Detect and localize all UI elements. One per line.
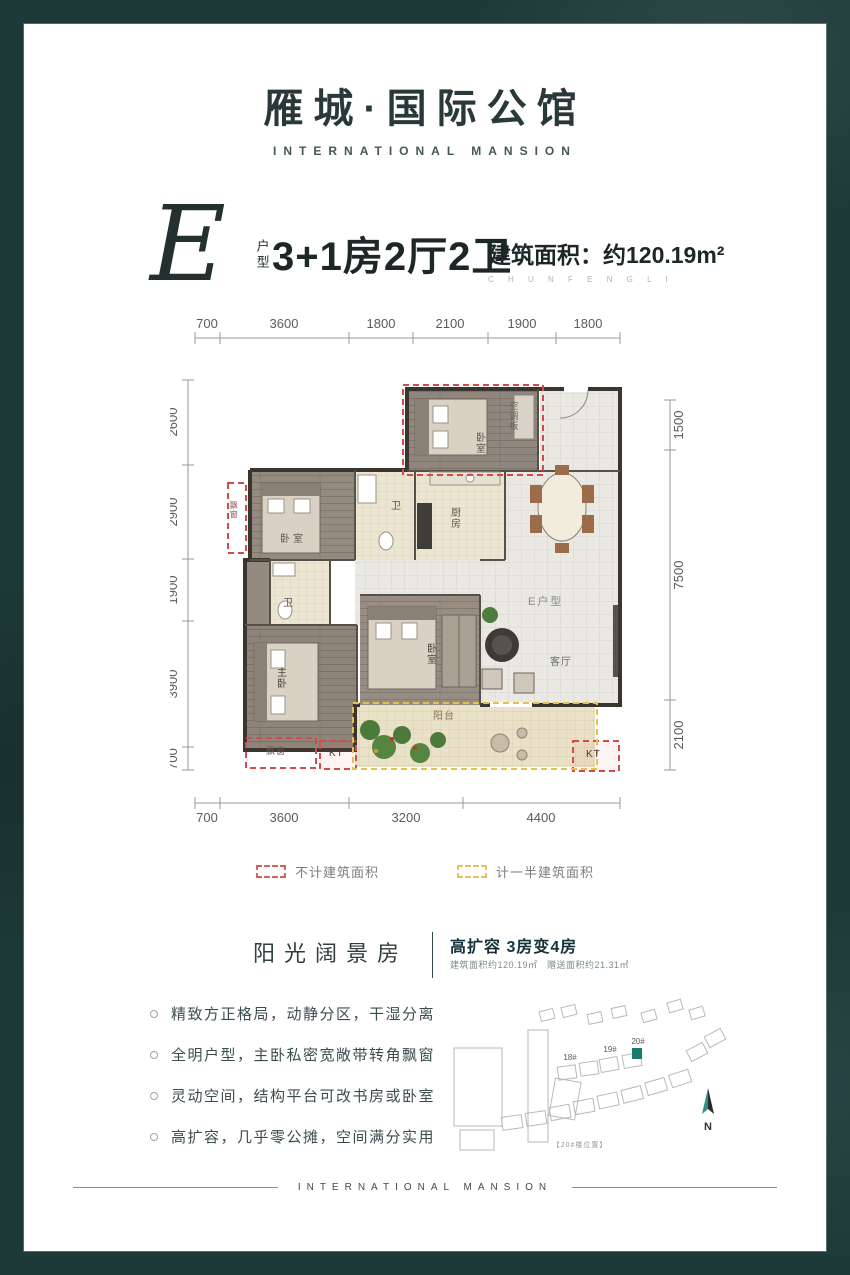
- highlighted-building-20: [632, 1048, 642, 1059]
- site-buildings: [454, 999, 726, 1150]
- label-building-20: 20#: [631, 1037, 645, 1046]
- bullet-3-text: 灵动空间，结构平台可改书房或卧室: [171, 1087, 435, 1107]
- feature-divider: [432, 932, 433, 978]
- dim-left-700: 700: [170, 748, 180, 770]
- label-unit-tag: E户型: [528, 596, 563, 609]
- label-master-bedroom: 主卧: [274, 667, 286, 689]
- feature-headline: 高扩容 3房变4房: [450, 933, 577, 957]
- dim-bot-4400: 4400: [527, 810, 556, 825]
- floor-plan: 700 3600 1800 2100 1900 1800 700 3600 32…: [170, 315, 690, 835]
- north-arrow-teal: [702, 1088, 708, 1114]
- north-arrow-dark: [708, 1088, 714, 1114]
- red-dashed-swatch: [256, 865, 286, 878]
- band-line-right: [572, 1187, 777, 1188]
- bullet-4: 高扩容，几乎零公摊，空间满分实用: [150, 1128, 435, 1148]
- dim-top-1800b: 1800: [574, 316, 603, 331]
- bullet-marker: [150, 1051, 158, 1059]
- bullet-2-text: 全明户型，主卧私密宽敞带转角飘窗: [171, 1046, 435, 1066]
- bullet-4-text: 高扩容，几乎零公摊，空间满分实用: [171, 1128, 435, 1148]
- label-bath-1: 卫: [391, 501, 402, 513]
- band-line-left: [73, 1187, 278, 1188]
- floor-plan-drawing: 700 3600 1800 2100 1900 1800 700 3600 32…: [170, 315, 690, 835]
- label-bath-2: 卫: [283, 598, 294, 610]
- dim-top-700: 700: [196, 316, 218, 331]
- unit-area-text: 建筑面积：约120.19m²: [488, 236, 724, 270]
- label-building-18: 18#: [563, 1053, 577, 1062]
- page-subtitle: INTERNATIONAL MANSION: [24, 144, 826, 158]
- label-bay-window-bottom: 飘窗: [266, 746, 286, 756]
- label-bedroom-left: 卧室: [280, 534, 306, 546]
- unit-rooms-title: 3+1房2厅2卫: [272, 224, 512, 282]
- dim-right-1500: 1500: [671, 411, 686, 440]
- page-title: 雁城·国际公馆: [24, 76, 826, 134]
- entry-door-gap: [564, 387, 588, 392]
- dim-top-1800: 1800: [367, 316, 396, 331]
- label-bedroom-top: 卧室: [473, 432, 485, 454]
- dim-bot-3200: 3200: [392, 810, 421, 825]
- page-background: 雁城·国际公馆 INTERNATIONAL MANSION E 户型 3+1房2…: [0, 0, 850, 1275]
- flyer-card: 雁城·国际公馆 INTERNATIONAL MANSION E 户型 3+1房2…: [24, 24, 826, 1251]
- dim-right-2100: 2100: [671, 721, 686, 750]
- unit-letter: E: [150, 192, 226, 296]
- plan-legend: 不计建筑面积 计一半建筑面积: [24, 862, 826, 881]
- bullet-marker: [150, 1010, 158, 1018]
- label-living-room: 客厅: [550, 657, 572, 669]
- dim-bot-3600: 3600: [270, 810, 299, 825]
- header: 雁城·国际公馆 INTERNATIONAL MANSION: [24, 76, 826, 158]
- bullet-3: 灵动空间，结构平台可改书房或卧室: [150, 1087, 435, 1107]
- yellow-dashed-swatch: [457, 865, 487, 878]
- site-plan: 18# 19# 20# N 【20#楼位置】: [440, 988, 740, 1158]
- dim-top-2100: 2100: [436, 316, 465, 331]
- legend-excluded-label: 不计建筑面积: [295, 862, 379, 881]
- bullet-1: 精致方正格局，动静分区，干湿分离: [150, 1005, 435, 1025]
- feature-name: 阳光阔景房: [253, 936, 408, 968]
- feature-detail: 建筑面积约120.19㎡ 赠送面积约21.31㎡: [450, 958, 629, 971]
- label-balcony: 阳台: [433, 711, 455, 723]
- bullet-1-text: 精致方正格局，动静分区，干湿分离: [171, 1005, 435, 1025]
- label-kitchen: 厨房: [448, 507, 460, 529]
- dim-right-7500: 7500: [671, 561, 686, 590]
- label-building-19: 19#: [603, 1045, 617, 1054]
- unit-area-subtext: C H U N F E N G L I: [488, 275, 724, 284]
- bullet-2: 全明户型，主卧私密宽敞带转角飘窗: [150, 1046, 435, 1066]
- dim-top-3600: 3600: [270, 316, 299, 331]
- bullet-marker: [150, 1133, 158, 1141]
- selling-points: 精致方正格局，动静分区，干湿分离 全明户型，主卧私密宽敞带转角飘窗 灵动空间，结…: [150, 1005, 435, 1169]
- unit-type-label: 户型: [254, 239, 270, 271]
- footer-band: INTERNATIONAL MANSION: [24, 1182, 826, 1193]
- legend-half: 计一半建筑面积: [457, 862, 594, 881]
- bullet-marker: [150, 1092, 158, 1100]
- unit-area-block: 建筑面积：约120.19m² C H U N F E N G L I: [488, 236, 724, 284]
- dim-left-2600: 2600: [170, 408, 180, 437]
- label-bay-window-left: 飘窗: [229, 501, 238, 519]
- dim-left-3900: 3900: [170, 670, 180, 699]
- site-plan-drawing: 18# 19# 20# N: [440, 988, 740, 1158]
- dim-top-1900: 1900: [508, 316, 537, 331]
- legend-excluded: 不计建筑面积: [256, 862, 379, 881]
- dim-bot-700: 700: [196, 810, 218, 825]
- band-text: INTERNATIONAL MANSION: [298, 1182, 552, 1193]
- site-plan-caption: 【20#楼位置】: [510, 1140, 650, 1150]
- dim-left-2900: 2900: [170, 498, 180, 527]
- label-ac-board: 空调板: [508, 401, 518, 431]
- north-arrow-label: N: [704, 1121, 712, 1133]
- label-bedroom-mid: 卧室: [424, 643, 436, 665]
- label-kt-right: KT: [586, 749, 601, 761]
- legend-half-label: 计一半建筑面积: [496, 862, 594, 881]
- label-kt-left: KT: [329, 748, 344, 760]
- dim-left-1900: 1900: [170, 576, 180, 605]
